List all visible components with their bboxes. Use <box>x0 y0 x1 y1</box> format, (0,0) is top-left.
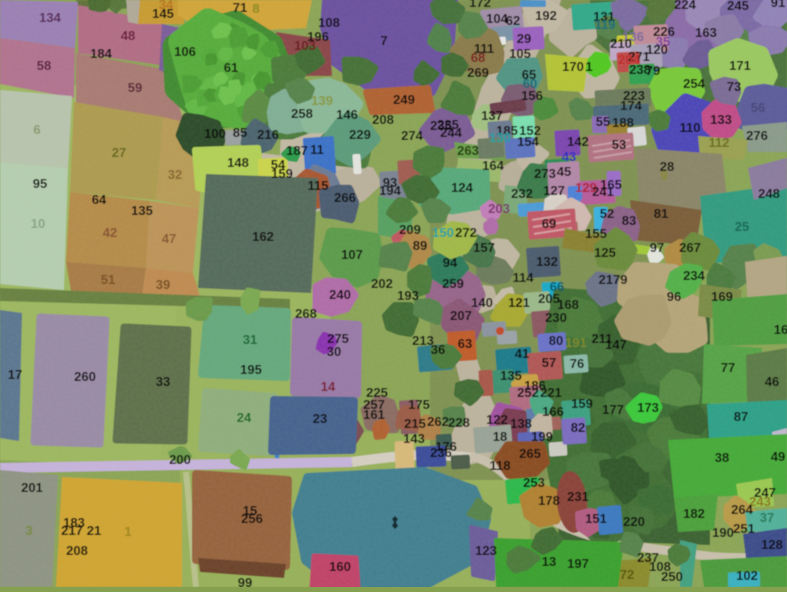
svg-text:80: 80 <box>549 333 563 348</box>
svg-text:133: 133 <box>710 112 732 127</box>
svg-text:2179: 2179 <box>599 272 628 287</box>
svg-text:263: 263 <box>457 143 479 158</box>
svg-text:260: 260 <box>74 369 96 384</box>
svg-text:105: 105 <box>509 46 531 61</box>
svg-text:147: 147 <box>605 337 627 352</box>
svg-text:51: 51 <box>101 272 115 287</box>
svg-text:121: 121 <box>508 295 530 310</box>
svg-text:266: 266 <box>334 190 356 205</box>
svg-text:252: 252 <box>517 385 539 400</box>
svg-text:170: 170 <box>562 59 584 74</box>
svg-text:224: 224 <box>674 0 696 12</box>
svg-text:148: 148 <box>227 155 249 170</box>
svg-text:85: 85 <box>233 125 247 140</box>
svg-text:159: 159 <box>571 396 593 411</box>
svg-text:79: 79 <box>646 63 660 78</box>
svg-text:100: 100 <box>204 126 226 141</box>
svg-text:14: 14 <box>321 379 336 394</box>
svg-text:9: 9 <box>660 168 667 183</box>
svg-text:188: 188 <box>612 115 634 130</box>
svg-text:262: 262 <box>427 414 449 429</box>
svg-text:268: 268 <box>295 306 317 321</box>
svg-text:171: 171 <box>729 58 751 73</box>
svg-text:21: 21 <box>87 523 101 538</box>
svg-text:59: 59 <box>128 80 142 95</box>
svg-text:8: 8 <box>252 1 259 16</box>
svg-text:269: 269 <box>467 65 489 80</box>
svg-text:164: 164 <box>482 158 504 173</box>
svg-text:95: 95 <box>33 176 47 191</box>
svg-text:64: 64 <box>92 192 107 207</box>
svg-text:174: 174 <box>620 98 642 113</box>
svg-text:72: 72 <box>620 567 634 582</box>
svg-text:229: 229 <box>349 127 371 142</box>
svg-text:248: 248 <box>758 186 780 201</box>
svg-text:202: 202 <box>371 276 393 291</box>
svg-text:55: 55 <box>596 114 610 129</box>
svg-text:244: 244 <box>440 125 462 140</box>
svg-text:89: 89 <box>413 238 427 253</box>
svg-text:114: 114 <box>513 270 535 285</box>
svg-text:83: 83 <box>622 213 636 228</box>
svg-text:187: 187 <box>286 143 308 158</box>
svg-text:1: 1 <box>124 524 131 539</box>
svg-text:208: 208 <box>372 112 394 127</box>
svg-text:56: 56 <box>751 100 765 115</box>
svg-text:182: 182 <box>683 506 705 521</box>
svg-text:276: 276 <box>746 128 768 143</box>
svg-text:195: 195 <box>240 362 262 377</box>
svg-text:249: 249 <box>393 92 415 107</box>
svg-text:146: 146 <box>336 107 358 122</box>
svg-text:125: 125 <box>594 245 616 260</box>
svg-text:45: 45 <box>557 164 571 179</box>
svg-text:230: 230 <box>545 310 567 325</box>
svg-text:123: 123 <box>475 543 497 558</box>
svg-text:194: 194 <box>379 183 401 198</box>
svg-text:118: 118 <box>490 458 511 473</box>
svg-text:49: 49 <box>771 449 785 464</box>
svg-text:217: 217 <box>61 523 83 538</box>
svg-text:27: 27 <box>112 145 126 160</box>
svg-text:160: 160 <box>329 559 351 574</box>
svg-text:58: 58 <box>37 58 51 73</box>
svg-text:96: 96 <box>667 289 681 304</box>
svg-text:157: 157 <box>473 240 495 255</box>
svg-text:130: 130 <box>489 130 511 145</box>
svg-text:254: 254 <box>683 76 705 91</box>
svg-text:106: 106 <box>174 44 196 59</box>
svg-text:232: 232 <box>511 186 533 201</box>
svg-text:127: 127 <box>543 183 565 198</box>
svg-text:199: 199 <box>531 429 553 444</box>
svg-text:68: 68 <box>471 50 485 65</box>
svg-text:192: 192 <box>535 8 557 23</box>
svg-text:87: 87 <box>734 409 748 424</box>
svg-text:251: 251 <box>733 521 755 536</box>
svg-text:48: 48 <box>121 28 135 43</box>
svg-text:115: 115 <box>308 178 329 193</box>
svg-text:18: 18 <box>493 429 507 444</box>
svg-text:110: 110 <box>680 120 701 135</box>
svg-text:139: 139 <box>311 93 333 108</box>
svg-text:215: 215 <box>404 416 426 431</box>
svg-text:94: 94 <box>443 255 458 270</box>
svg-text:25: 25 <box>735 219 749 234</box>
svg-text:265: 265 <box>519 446 541 461</box>
svg-text:61: 61 <box>224 60 238 75</box>
svg-text:82: 82 <box>571 420 585 435</box>
svg-text:122: 122 <box>486 412 508 427</box>
svg-text:29: 29 <box>517 31 531 46</box>
svg-text:81: 81 <box>654 206 668 221</box>
svg-text:1: 1 <box>585 59 592 74</box>
svg-text:7: 7 <box>380 33 387 48</box>
svg-text:193: 193 <box>397 288 419 303</box>
svg-text:97: 97 <box>650 240 664 255</box>
svg-text:161: 161 <box>363 407 385 422</box>
svg-text:201: 201 <box>21 480 43 495</box>
svg-text:267: 267 <box>679 240 701 255</box>
svg-text:43: 43 <box>562 149 576 164</box>
svg-text:135: 135 <box>131 203 153 218</box>
svg-text:33: 33 <box>156 374 170 389</box>
svg-text:151: 151 <box>585 511 607 526</box>
svg-text:41: 41 <box>515 346 529 361</box>
svg-text:107: 107 <box>341 247 363 262</box>
svg-text:36: 36 <box>431 342 445 357</box>
svg-text:178: 178 <box>538 493 560 508</box>
svg-text:37: 37 <box>760 510 774 525</box>
svg-text:46: 46 <box>765 374 779 389</box>
svg-text:177: 177 <box>602 402 624 417</box>
svg-text:196: 196 <box>307 29 329 44</box>
svg-text:62: 62 <box>506 13 520 28</box>
svg-text:76: 76 <box>570 356 584 371</box>
svg-text:119: 119 <box>595 17 616 32</box>
svg-text:216: 216 <box>257 127 279 142</box>
svg-text:142: 142 <box>567 134 589 149</box>
svg-text:39: 39 <box>156 277 170 292</box>
svg-text:34: 34 <box>159 0 174 12</box>
svg-text:154: 154 <box>517 134 539 149</box>
svg-text:124: 124 <box>451 180 473 195</box>
svg-text:162: 162 <box>252 229 274 244</box>
svg-text:168: 168 <box>557 297 579 312</box>
svg-text:207: 207 <box>450 308 472 323</box>
svg-text:159: 159 <box>271 166 293 181</box>
svg-text:102: 102 <box>736 568 758 583</box>
svg-text:32: 32 <box>168 167 182 182</box>
svg-text:259: 259 <box>442 276 464 291</box>
svg-text:91: 91 <box>771 0 785 10</box>
svg-text:112: 112 <box>709 135 730 150</box>
svg-text:274: 274 <box>401 128 423 143</box>
svg-text:69: 69 <box>542 216 556 231</box>
svg-text:42: 42 <box>103 225 117 240</box>
svg-text:134: 134 <box>39 10 61 25</box>
svg-text:31: 31 <box>243 332 257 347</box>
svg-text:165: 165 <box>600 177 622 192</box>
svg-text:6: 6 <box>33 122 40 137</box>
svg-text:197: 197 <box>567 556 589 571</box>
svg-text:236: 236 <box>430 445 452 460</box>
svg-text:30: 30 <box>327 344 341 359</box>
svg-text:240: 240 <box>329 287 351 302</box>
svg-text:272: 272 <box>455 225 477 240</box>
svg-text:128: 128 <box>761 537 783 552</box>
svg-text:52: 52 <box>600 206 614 221</box>
svg-text:53: 53 <box>612 137 626 152</box>
svg-text:47: 47 <box>162 231 176 246</box>
svg-text:191: 191 <box>565 335 587 350</box>
svg-text:173: 173 <box>637 400 659 415</box>
svg-text:24: 24 <box>237 410 252 425</box>
svg-text:73: 73 <box>727 79 741 94</box>
svg-text:273: 273 <box>534 166 556 181</box>
svg-text:99: 99 <box>238 575 252 587</box>
svg-text:245: 245 <box>727 0 749 13</box>
svg-text:71: 71 <box>233 0 247 15</box>
svg-text:38: 38 <box>715 450 729 465</box>
svg-text:57: 57 <box>542 355 556 370</box>
svg-text:16: 16 <box>774 322 787 337</box>
svg-text:231: 231 <box>567 489 589 504</box>
svg-text:209: 209 <box>399 222 421 237</box>
svg-text:169: 169 <box>711 289 733 304</box>
svg-text:17: 17 <box>8 367 22 382</box>
svg-text:132: 132 <box>536 254 558 269</box>
svg-text:137: 137 <box>481 108 503 123</box>
svg-text:250: 250 <box>661 569 683 584</box>
svg-text:221: 221 <box>540 385 562 400</box>
svg-text:203: 203 <box>488 201 510 216</box>
svg-text:108: 108 <box>318 15 340 30</box>
svg-text:172: 172 <box>469 0 491 10</box>
svg-text:175: 175 <box>408 397 430 412</box>
svg-text:264: 264 <box>731 502 753 517</box>
svg-text:135: 135 <box>500 368 522 383</box>
svg-text:234: 234 <box>683 268 705 283</box>
svg-text:63: 63 <box>458 336 472 351</box>
svg-text:77: 77 <box>721 360 735 375</box>
svg-text:155: 155 <box>585 226 607 241</box>
svg-text:256: 256 <box>241 511 263 526</box>
svg-text:23: 23 <box>313 411 327 426</box>
svg-text:184: 184 <box>90 46 112 61</box>
svg-text:10: 10 <box>31 216 45 231</box>
svg-text:143: 143 <box>403 431 425 446</box>
svg-text:140: 140 <box>471 295 493 310</box>
svg-text:163: 163 <box>695 25 717 40</box>
svg-text:3: 3 <box>25 523 32 538</box>
svg-text:190: 190 <box>712 525 734 540</box>
svg-text:156: 156 <box>521 88 543 103</box>
svg-text:258: 258 <box>291 106 313 121</box>
svg-text:220: 220 <box>623 514 645 529</box>
svg-text:253: 253 <box>523 475 545 490</box>
svg-text:150: 150 <box>432 225 454 240</box>
svg-text:138: 138 <box>510 416 532 431</box>
svg-text:13: 13 <box>542 554 556 569</box>
svg-text:208: 208 <box>66 543 88 558</box>
svg-text:200: 200 <box>169 452 191 467</box>
svg-text:228: 228 <box>448 415 470 430</box>
svg-text:11: 11 <box>310 142 324 157</box>
svg-text:166: 166 <box>542 404 564 419</box>
